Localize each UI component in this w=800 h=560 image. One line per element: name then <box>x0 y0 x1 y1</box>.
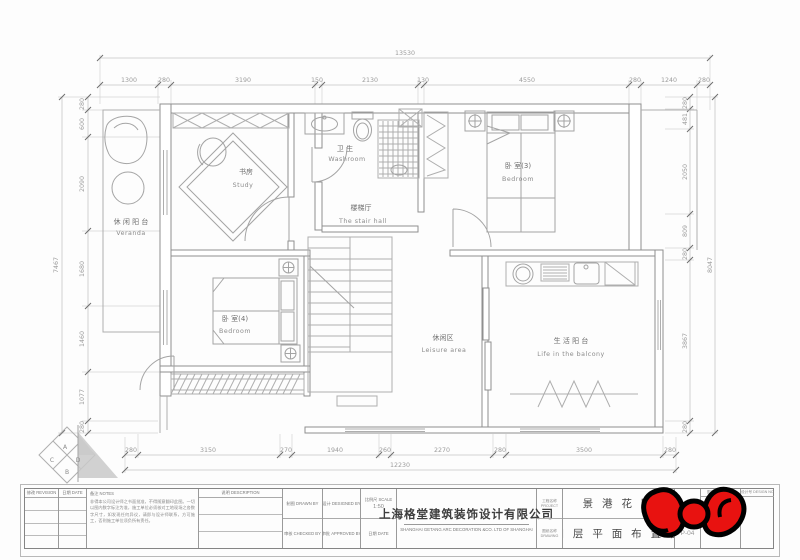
dim-label: 1460 <box>79 331 86 347</box>
dim-label: 13530 <box>395 50 415 57</box>
dim-label: 280 <box>79 98 86 110</box>
bedroom3-furniture <box>465 111 574 232</box>
drawing-no-column: P-04 <box>675 489 701 548</box>
date-column: 日期 DATE <box>59 489 87 548</box>
dim-label: 280 <box>664 447 676 454</box>
compass-symbol: A D B C <box>39 425 118 483</box>
staircase <box>308 237 392 406</box>
scale-label: 比例尺 SCALE <box>365 497 392 503</box>
sheet-no-header: 图号 SHEET NO <box>701 489 740 497</box>
room-label-cn: 书房 <box>239 167 253 176</box>
dim-label: 3150 <box>200 447 216 454</box>
dimensions-top: 13530 1300 280 3190 150 2130 130 4550 28… <box>97 50 713 110</box>
sheet-no-column: 图号 SHEET NO 95 <box>701 489 741 548</box>
dim-label: 1240 <box>661 77 677 84</box>
dim-label: 280 <box>698 77 710 84</box>
dim-label: 150 <box>311 77 323 84</box>
pillow <box>492 115 519 130</box>
room-label-cn: 卧 室(4) <box>222 314 248 323</box>
company-name-cn: 上海格堂建筑装饰设计有限公司 <box>379 506 554 522</box>
sliding-door-panel <box>485 342 491 390</box>
dim-label: 260 <box>379 447 391 454</box>
veranda-furniture <box>105 116 147 204</box>
dim-label: 280 <box>125 447 137 454</box>
sink-counter <box>305 113 344 134</box>
dim-label: 130 <box>417 77 429 84</box>
drying-rack <box>538 381 610 407</box>
lamp-symbol <box>558 115 570 127</box>
room-label-en: The stair hall <box>338 218 387 225</box>
dim-label: 280 <box>79 421 86 433</box>
doors <box>140 147 491 390</box>
dim-label: 280 <box>494 447 506 454</box>
description-column: 说明 DESCRIPTION <box>199 489 283 548</box>
room-label-en: Bedroom <box>502 176 534 183</box>
room-label-cn: 楼梯厅 <box>351 203 372 212</box>
dim-label: 600 <box>79 118 86 130</box>
washroom-fixtures <box>305 109 448 178</box>
desk-chair <box>200 138 226 166</box>
company-column: 上海格堂建筑装饰设计有限公司 SHANGHAI GETANG ARC DECOR… <box>397 489 537 548</box>
room-label-en: Life in the balcony <box>537 351 605 358</box>
headboard <box>279 278 297 344</box>
dim-label: 2090 <box>79 176 86 192</box>
notes-column: 备注 NOTES 非得本公司设计师之书面批准，不得随意翻印此图。一切以图内数字标… <box>87 489 199 548</box>
shower <box>378 120 419 178</box>
room-label-cn: 休 闲 阳 台 <box>114 217 149 226</box>
faucet <box>584 265 588 269</box>
drawing-name: 四 层 平 面 布 置 图 <box>563 526 674 541</box>
designed-by-cell: 设计 DESIGNED BY <box>323 489 360 519</box>
dim-label: 809 <box>682 225 689 237</box>
project-name: 景 港 花 园 <box>583 496 655 511</box>
bedroom4-furniture <box>213 259 300 362</box>
bed <box>213 278 297 344</box>
description-header: 说明 DESCRIPTION <box>199 489 282 498</box>
balcony-laundry <box>483 262 638 407</box>
lamp-symbol <box>469 115 481 127</box>
designed-approved-column: 设计 DESIGNED BY 审批 APPROVED BY <box>323 489 361 548</box>
room-label-en: Bedroom <box>219 328 251 335</box>
wardrobe <box>424 112 448 178</box>
dim-label: 8047 <box>707 257 714 273</box>
drawing-label-cell: 图纸名称 DRAWING <box>537 519 562 548</box>
washboard <box>541 264 569 281</box>
dim-label: 1680 <box>79 261 86 277</box>
nightstand <box>465 111 485 131</box>
drawn-by-cell: 制图 DRAWN BY <box>283 489 322 519</box>
pillow <box>281 281 294 310</box>
dim-label: 4550 <box>519 77 535 84</box>
headboard <box>487 112 555 133</box>
dim-label: 3500 <box>576 447 592 454</box>
lamp-symbol <box>285 348 296 359</box>
washing-machine <box>513 264 533 284</box>
room-label-en: Leisure area <box>422 347 467 354</box>
dim-label: 280 <box>682 97 689 109</box>
dim-label: 7467 <box>53 257 60 273</box>
date2-cell: 日期 DATE <box>361 519 396 548</box>
nightstand <box>281 345 300 362</box>
name-labels-column: 工程名称 PROJECT 图纸名称 DRAWING <box>537 489 563 548</box>
compass-letter: C <box>50 457 54 464</box>
sheet-no-cell: 95 <box>701 497 740 548</box>
dim-label: 12230 <box>390 462 410 469</box>
dimensions-left: 7467 280 600 2090 1680 1460 1077 280 <box>53 94 160 436</box>
laundry-counter <box>506 262 638 286</box>
room-label-en: Washroom <box>328 156 365 163</box>
lamp-symbol <box>283 262 294 273</box>
pillow <box>521 115 548 130</box>
approved-by-cell: 审批 APPROVED BY <box>323 519 360 548</box>
floor-plan-sheet: 修改 REVISION 日期 DATE 备注 NOTES 非得本公司设计师之书面… <box>0 0 800 560</box>
company-name-en: SHANGHAI GETANG ARC DECORATION &CO. LTD … <box>400 527 533 532</box>
revision-header: 修改 REVISION <box>25 489 58 498</box>
dim-label: 2270 <box>434 447 450 454</box>
room-label-en: Veranda <box>116 230 146 237</box>
checked-by-cell: 审核 CHECKED BY <box>283 519 322 548</box>
design-no-column: 设计号 DESIGN NO <box>741 489 774 548</box>
nightstand <box>554 111 574 131</box>
dim-label: 2050 <box>682 164 689 180</box>
toilet-tank <box>352 112 373 119</box>
dim-label: 280 <box>629 77 641 84</box>
design-no-header: 设计号 DESIGN NO <box>741 489 774 497</box>
drawing-no-cell: P-04 <box>675 519 700 548</box>
shower-drain <box>391 165 407 175</box>
dim-label: 481 <box>682 113 689 125</box>
drawing-no: P-04 <box>681 530 695 537</box>
laundry-sink <box>574 263 599 284</box>
notes-cell: 备注 NOTES 非得本公司设计师之书面批准，不得随意翻印此图。一切以图内数字标… <box>87 489 198 527</box>
drawn-checked-column: 制图 DRAWN BY 审核 CHECKED BY <box>283 489 323 548</box>
windows <box>164 150 661 432</box>
duct <box>399 109 422 127</box>
dim-label: 270 <box>280 447 292 454</box>
floor-plan-svg: 13530 1300 280 3190 150 2130 130 4550 28… <box>0 0 800 560</box>
toilet-bowl <box>354 119 372 141</box>
room-labels: 休 闲 阳 台 Veranda 书房 Study 卫 生 Washroom 楼梯… <box>114 144 605 358</box>
company-divider <box>404 524 528 525</box>
project-name-cell: 景 港 花 园 <box>563 489 674 519</box>
room-label-cn: 休闲区 <box>433 333 454 342</box>
dimensions-bottom: 280 3150 270 1940 260 2270 280 3500 280 … <box>122 434 679 473</box>
notes-text: 非得本公司设计师之书面批准，不得随意翻印此图。一切以图内数字标注为准，施工单位必… <box>90 499 195 524</box>
dim-label: 280 <box>682 421 689 433</box>
compass-letter: B <box>65 469 69 476</box>
room-label-cn: 卧 室(3) <box>505 161 531 170</box>
dim-label: 280 <box>682 248 689 260</box>
walls <box>103 104 697 433</box>
pillow <box>281 312 294 341</box>
date-header: 日期 DATE <box>59 489 86 498</box>
closet <box>173 113 289 128</box>
room-label-en: Study <box>233 182 254 189</box>
room-label-cn: 生 活 阳 台 <box>554 336 589 345</box>
dim-label: 280 <box>158 77 170 84</box>
project-label-cell: 工程名称 PROJECT <box>537 489 562 519</box>
drawing-name-cell: 四 层 平 面 布 置 图 <box>563 519 674 548</box>
cabinet <box>605 262 635 285</box>
dim-label: 1940 <box>327 447 343 454</box>
dim-label: 3867 <box>682 333 689 349</box>
bed <box>487 112 555 232</box>
railing-hatch <box>171 374 304 394</box>
revision-column: 修改 REVISION <box>25 489 59 548</box>
names-column: 景 港 花 园 四 层 平 面 布 置 图 <box>563 489 675 548</box>
sink-basin <box>312 117 338 131</box>
compass-letter: A <box>63 444 68 451</box>
title-block: 修改 REVISION 日期 DATE 备注 NOTES 非得本公司设计师之书面… <box>24 488 774 549</box>
dim-label: 1077 <box>79 389 86 405</box>
dim-label: 2130 <box>362 77 378 84</box>
room-label-cn: 卫 生 <box>337 144 353 153</box>
nightstand <box>279 259 298 276</box>
notes-label: 备注 NOTES <box>90 491 195 498</box>
compass-letter: D <box>76 457 81 464</box>
study-furniture <box>173 113 289 241</box>
dimensions-right: 8047 280 481 2050 809 280 3867 280 <box>665 94 718 436</box>
sheet-no: 95 <box>714 515 727 529</box>
round-table <box>112 172 144 204</box>
sliding-door-panel <box>483 288 489 340</box>
dim-label: 3190 <box>235 77 251 84</box>
dim-label: 1300 <box>121 77 137 84</box>
